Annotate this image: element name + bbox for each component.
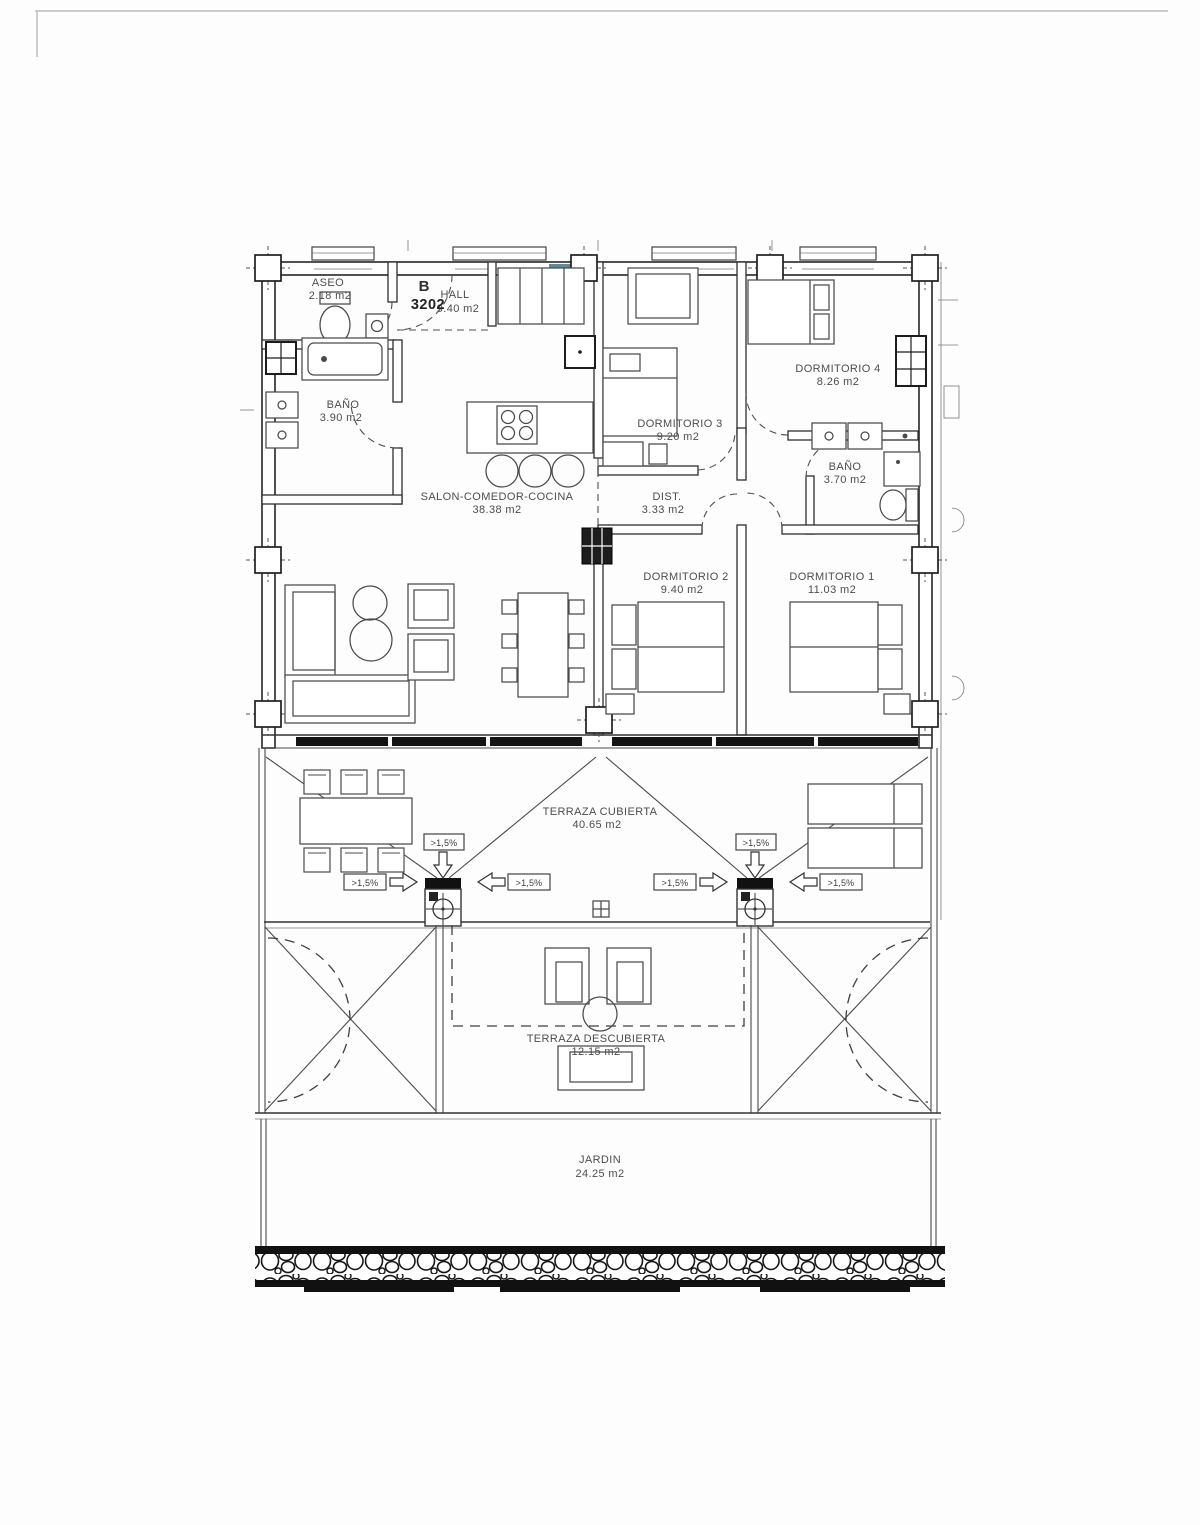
slope-label: >1,5% bbox=[662, 878, 689, 888]
sink-icon bbox=[266, 422, 298, 448]
label-dorm2-area: 9.40 m2 bbox=[661, 584, 704, 596]
label-terraza-cubierta-area: 40.65 m2 bbox=[572, 819, 621, 831]
slope-arrow-icon bbox=[700, 873, 727, 891]
sink-icon bbox=[266, 392, 298, 418]
slope-arrow-icon bbox=[478, 873, 505, 891]
chair-icon bbox=[304, 770, 330, 794]
sink-icon bbox=[366, 314, 388, 338]
dining-table-icon bbox=[518, 593, 568, 697]
chair-icon bbox=[341, 848, 367, 872]
label-aseo-name: ASEO bbox=[312, 277, 344, 289]
slope-arrow-icon bbox=[746, 852, 764, 878]
floor-plan-page: ASEO 2.18 m2 HALL 9.40 m2 B 3202 BAÑO 3.… bbox=[0, 0, 1200, 1525]
label-bano2-area: 3.70 m2 bbox=[824, 474, 867, 486]
nightstand-icon bbox=[606, 694, 634, 714]
label-terraza-cubierta-name: TERRAZA CUBIERTA bbox=[543, 806, 658, 818]
drain-icon bbox=[737, 878, 773, 926]
uncovered-terrace-furniture bbox=[545, 948, 651, 1090]
label-terraza-descubierta-area: 12.15 m2 bbox=[571, 1046, 620, 1058]
label-aseo-area: 2.18 m2 bbox=[309, 290, 352, 302]
chair-icon bbox=[569, 668, 584, 682]
nightstand-icon bbox=[603, 442, 643, 466]
pillow-icon bbox=[612, 605, 636, 645]
label-dist-area: 3.33 m2 bbox=[642, 504, 685, 516]
toilet-icon bbox=[880, 490, 906, 520]
kitchen-area bbox=[467, 336, 595, 487]
chair-icon bbox=[569, 634, 584, 648]
round-table-icon bbox=[583, 997, 617, 1031]
bed-icon bbox=[748, 280, 834, 344]
sink-icon bbox=[848, 423, 882, 449]
side-planter-right bbox=[758, 927, 931, 1111]
hall-wardrobe bbox=[498, 268, 584, 324]
stone-hatch bbox=[255, 1254, 945, 1280]
lounger-icon bbox=[808, 784, 922, 824]
chair-icon bbox=[378, 848, 404, 872]
stool-icon bbox=[519, 455, 551, 487]
lounger-icon bbox=[808, 828, 922, 868]
stool-icon bbox=[486, 455, 518, 487]
wardrobe-icon bbox=[628, 268, 698, 324]
dorm2-furniture bbox=[606, 602, 724, 714]
roof-projection-outline bbox=[452, 925, 744, 1026]
label-dist-name: DIST. bbox=[653, 491, 682, 503]
tv-unit-icon bbox=[582, 528, 612, 564]
shower-icon bbox=[884, 452, 920, 486]
glazed-doors bbox=[262, 735, 932, 748]
coffee-table-icon bbox=[353, 586, 387, 620]
exterior-wall-left bbox=[262, 262, 275, 748]
sink-icon bbox=[812, 423, 846, 449]
slope-label: >1,5% bbox=[828, 878, 855, 888]
unit-block-label: B bbox=[419, 278, 430, 295]
section-top-bar bbox=[255, 1246, 945, 1254]
chair-icon bbox=[607, 948, 651, 1004]
label-salon-name: SALON-COMEDOR-COCINA bbox=[421, 491, 574, 503]
outdoor-table-icon bbox=[300, 798, 412, 844]
uncovered-terrace: TERRAZA DESCUBIERTA 12.15 m2 bbox=[255, 925, 941, 1119]
column-icon bbox=[246, 246, 290, 290]
label-jardin-area: 24.25 m2 bbox=[575, 1168, 624, 1180]
label-salon-area: 38.38 m2 bbox=[472, 504, 521, 516]
chair-icon bbox=[502, 668, 517, 682]
floor-plan-svg: ASEO 2.18 m2 HALL 9.40 m2 B 3202 BAÑO 3.… bbox=[0, 0, 1200, 1525]
coffee-table-icon bbox=[350, 619, 392, 661]
label-dorm3-area: 9.20 m2 bbox=[657, 431, 700, 443]
stool-icon bbox=[552, 455, 584, 487]
pillow-icon bbox=[878, 649, 902, 689]
slope-arrow-icon bbox=[390, 873, 417, 891]
label-dorm1-area: 11.03 m2 bbox=[808, 584, 856, 596]
pillow-icon bbox=[878, 605, 902, 645]
slope-arrow-icon bbox=[434, 852, 452, 878]
section-bottom-bar bbox=[255, 1280, 945, 1287]
slope-label: >1,5% bbox=[352, 878, 379, 888]
label-dorm2-name: DORMITORIO 2 bbox=[643, 571, 728, 583]
slope-annotations: >1,5% >1,5% >1,5% >1,5% >1,5% >1,5% bbox=[344, 834, 862, 891]
chair-icon bbox=[378, 770, 404, 794]
pillow-icon bbox=[612, 649, 636, 689]
chair-icon bbox=[569, 600, 584, 614]
garden: JARDIN 24.25 m2 bbox=[261, 1119, 936, 1247]
dorm1-furniture bbox=[790, 602, 910, 714]
exterior-wall-right bbox=[919, 262, 932, 748]
slope-label: >1,5% bbox=[431, 838, 458, 848]
label-dorm4-name: DORMITORIO 4 bbox=[795, 363, 880, 375]
sun-loungers bbox=[808, 784, 922, 868]
toilet-icon bbox=[906, 489, 918, 521]
label-jardin-name: JARDIN bbox=[579, 1154, 621, 1166]
chair-icon bbox=[341, 770, 367, 794]
nightstand-icon bbox=[884, 694, 910, 714]
slope-label: >1,5% bbox=[743, 838, 770, 848]
label-terraza-descubierta-name: TERRAZA DESCUBIERTA bbox=[527, 1033, 666, 1045]
slope-arrow-icon bbox=[790, 873, 817, 891]
side-planter-left bbox=[265, 927, 436, 1111]
living-room-furniture bbox=[285, 584, 584, 723]
armchair-icon bbox=[408, 634, 454, 680]
chair-icon bbox=[304, 848, 330, 872]
label-bano1-name: BAÑO bbox=[327, 398, 360, 411]
wardrobe-icon bbox=[498, 268, 584, 324]
chair-icon bbox=[502, 600, 517, 614]
room-bano1 bbox=[266, 338, 388, 448]
label-bano1-area: 3.90 m2 bbox=[320, 412, 363, 424]
page-frame bbox=[35, 11, 1168, 57]
unit-number-label: 3202 bbox=[411, 297, 445, 313]
slope-label: >1,5% bbox=[516, 878, 543, 888]
chair-icon bbox=[502, 634, 517, 648]
terrace-dining-set bbox=[300, 770, 412, 872]
label-dorm1-name: DORMITORIO 1 bbox=[789, 571, 874, 583]
floor-grille-icon bbox=[593, 901, 609, 917]
label-bano2-name: BAÑO bbox=[829, 460, 862, 473]
drain-icon bbox=[425, 878, 461, 926]
label-dorm4-area: 8.26 m2 bbox=[817, 376, 860, 388]
nightstand-icon bbox=[649, 444, 667, 464]
bathtub-icon bbox=[302, 338, 388, 380]
label-dorm3-name: DORMITORIO 3 bbox=[637, 418, 722, 430]
ground-section bbox=[255, 1246, 945, 1292]
